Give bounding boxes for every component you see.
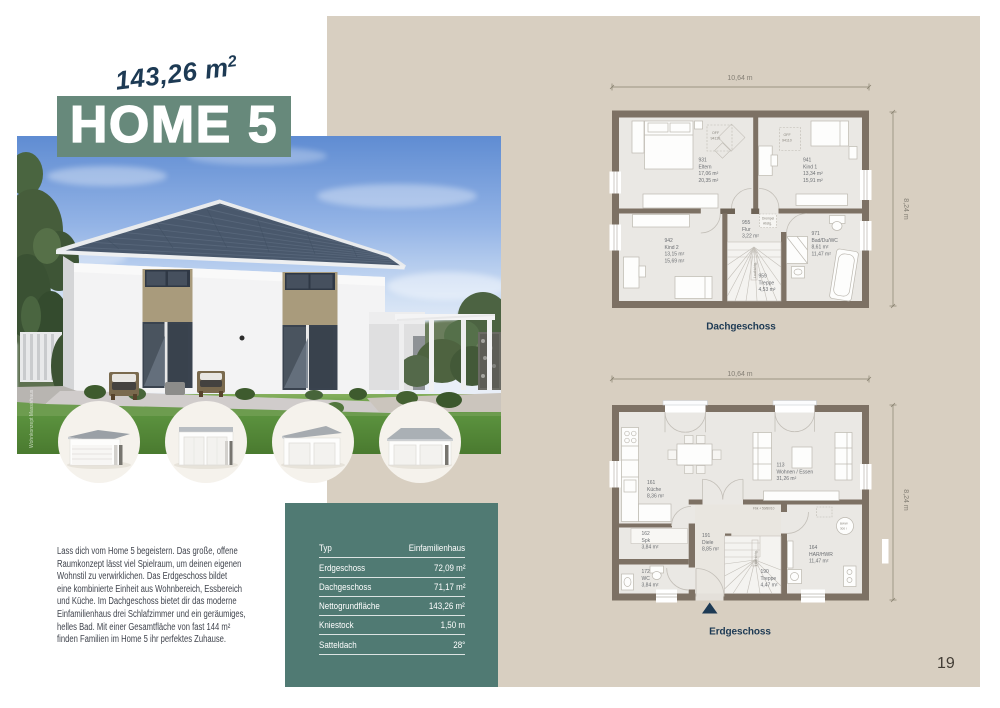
- svg-text:15,91 m²: 15,91 m²: [803, 178, 823, 184]
- svg-text:Drempel: Drempel: [762, 217, 774, 221]
- svg-text:Küche: Küche: [647, 487, 661, 493]
- svg-text:Fbk + 50/80/10: Fbk + 50/80/10: [753, 507, 775, 511]
- svg-text:190: 190: [761, 569, 770, 575]
- svg-text:94110: 94110: [782, 139, 792, 143]
- svg-text:971: 971: [812, 231, 821, 237]
- svg-text:8,24 m: 8,24 m: [902, 198, 909, 220]
- svg-text:15,69 m²: 15,69 m²: [665, 258, 685, 264]
- svg-text:WC: WC: [642, 576, 651, 582]
- svg-text:Laufrichtg.: Laufrichtg.: [754, 550, 758, 566]
- svg-text:300 l: 300 l: [840, 527, 847, 531]
- svg-text:Abstg.: Abstg.: [763, 222, 772, 226]
- svg-text:13,15 m²: 13,15 m²: [665, 252, 685, 258]
- svg-text:Treppe: Treppe: [759, 280, 775, 286]
- svg-text:Kind 2: Kind 2: [665, 245, 679, 251]
- svg-text:13,34 m²: 13,34 m²: [803, 171, 823, 177]
- svg-text:Dachgeschoss: Dachgeschoss: [706, 322, 776, 333]
- svg-text:17,06 m²: 17,06 m²: [699, 171, 719, 177]
- svg-text:94110: 94110: [711, 137, 721, 141]
- svg-text:8,36 m²: 8,36 m²: [647, 494, 664, 500]
- svg-text:Wohnkonzept Massivhaus: Wohnkonzept Massivhaus: [29, 389, 35, 448]
- svg-text:942: 942: [665, 238, 674, 244]
- svg-text:172: 172: [642, 569, 651, 575]
- svg-text:3,84 m²: 3,84 m²: [642, 583, 659, 589]
- svg-text:Kind 1: Kind 1: [803, 164, 817, 170]
- svg-text:955: 955: [742, 220, 751, 226]
- svg-text:164: 164: [809, 545, 818, 551]
- svg-text:20,35 m²: 20,35 m²: [699, 178, 719, 184]
- svg-text:31,26 m²: 31,26 m²: [777, 476, 797, 482]
- svg-text:10,64 m: 10,64 m: [727, 371, 752, 378]
- svg-text:4,47 m²: 4,47 m²: [761, 583, 778, 589]
- svg-text:959: 959: [759, 274, 768, 280]
- svg-text:Laufrichtg.: Laufrichtg.: [753, 262, 757, 278]
- svg-text:OFF: OFF: [712, 131, 720, 135]
- svg-text:8,24 m: 8,24 m: [902, 489, 909, 511]
- svg-text:113: 113: [777, 463, 785, 469]
- svg-text:8,61 m²: 8,61 m²: [812, 245, 829, 251]
- svg-text:162: 162: [642, 531, 651, 537]
- svg-text:Spk: Spk: [642, 538, 651, 544]
- svg-text:3,84 m²: 3,84 m²: [642, 545, 659, 551]
- svg-text:Diele: Diele: [702, 540, 714, 546]
- svg-text:Bad/Du/WC: Bad/Du/WC: [812, 238, 839, 244]
- svg-text:931: 931: [699, 158, 708, 164]
- svg-text:3,22 m²: 3,22 m²: [742, 234, 759, 240]
- svg-text:Flur: Flur: [742, 227, 751, 233]
- svg-text:8,85 m²: 8,85 m²: [702, 547, 719, 553]
- svg-text:4,53 m²: 4,53 m²: [759, 287, 776, 293]
- svg-text:Erdgeschoss: Erdgeschoss: [709, 627, 771, 638]
- svg-text:HAR/HWR: HAR/HWR: [809, 552, 833, 558]
- svg-text:Eltern: Eltern: [699, 164, 712, 170]
- svg-text:Treppe: Treppe: [761, 576, 777, 582]
- svg-text:191: 191: [702, 533, 711, 539]
- svg-text:161: 161: [647, 480, 656, 486]
- svg-text:BWW: BWW: [840, 522, 848, 526]
- svg-text:941: 941: [803, 158, 812, 164]
- svg-text:11,47 m²: 11,47 m²: [809, 559, 829, 565]
- svg-text:Wohnen / Essen: Wohnen / Essen: [777, 469, 814, 475]
- svg-text:OFF: OFF: [784, 133, 792, 137]
- svg-text:11,47 m²: 11,47 m²: [812, 251, 832, 257]
- svg-text:10,64 m: 10,64 m: [727, 75, 752, 82]
